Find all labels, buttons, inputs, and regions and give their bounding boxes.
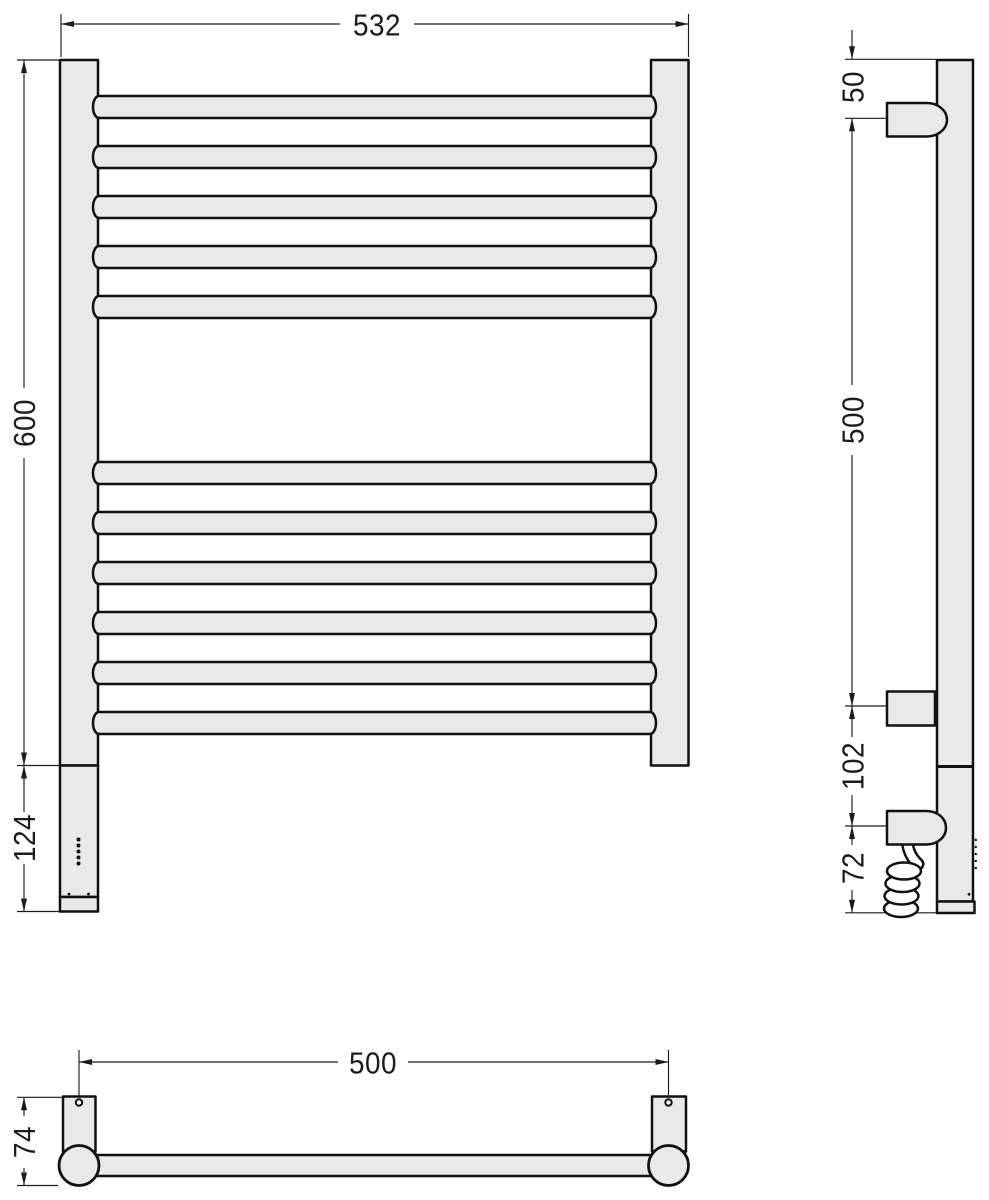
rung — [93, 146, 656, 168]
dimension-front-height: 600 — [8, 60, 59, 766]
bottom-left-post-section — [59, 1146, 99, 1186]
dimension-side-bracket-spacing: 500 — [836, 118, 886, 706]
bottom-rail — [95, 1155, 653, 1176]
bottom-spacing-label: 500 — [349, 1046, 397, 1081]
towel-radiator-drawing: 532 600 124 50 500 — [0, 0, 989, 1200]
rung — [93, 662, 656, 684]
rung — [93, 296, 656, 318]
front-width-label: 532 — [353, 8, 401, 43]
bottom-depth-label: 74 — [8, 1126, 43, 1158]
rung — [93, 712, 656, 734]
front-control-box — [60, 766, 98, 898]
dimension-front-control-height: 124 — [8, 766, 59, 912]
dimension-side-element-offset: 102 — [836, 706, 886, 826]
side-indicator-dots — [975, 839, 977, 869]
side-cable-drop-label: 72 — [836, 852, 871, 884]
technical-drawing-page: 532 600 124 50 500 — [0, 0, 989, 1200]
rungs — [93, 96, 656, 734]
side-bracket-spacing-label: 500 — [836, 396, 871, 444]
side-bottom-cap — [937, 902, 975, 914]
side-top-offset-label: 50 — [836, 71, 871, 103]
front-control-box-cap — [60, 897, 98, 912]
rung — [93, 612, 656, 634]
rung — [93, 246, 656, 268]
spiral-cable — [884, 863, 921, 918]
side-lower-bracket — [887, 692, 935, 726]
rung — [93, 196, 656, 218]
front-control-height-label: 124 — [8, 814, 43, 862]
front-height-label: 600 — [8, 399, 43, 447]
side-view — [884, 60, 977, 917]
bottom-left-mount-hole — [76, 1099, 82, 1105]
side-screw-dot — [968, 893, 971, 896]
side-top-bracket — [887, 103, 947, 137]
rung — [93, 96, 656, 118]
dimension-bottom-spacing: 500 — [79, 1046, 669, 1096]
dimension-front-width: 532 — [61, 8, 689, 57]
front-left-post — [60, 60, 98, 766]
side-heating-element — [887, 811, 946, 845]
front-view — [60, 60, 689, 912]
bottom-right-post-section — [649, 1146, 689, 1186]
dimension-bottom-depth: 74 — [8, 1097, 62, 1185]
rung — [93, 512, 656, 534]
bottom-right-mount-hole — [665, 1099, 671, 1105]
rung — [93, 562, 656, 584]
dimension-annotations: 532 600 124 50 500 — [8, 8, 975, 1185]
side-post — [937, 60, 973, 902]
bottom-view — [59, 1097, 689, 1186]
side-element-offset-label: 102 — [836, 742, 871, 790]
front-right-post — [651, 60, 689, 766]
rung — [93, 462, 656, 484]
